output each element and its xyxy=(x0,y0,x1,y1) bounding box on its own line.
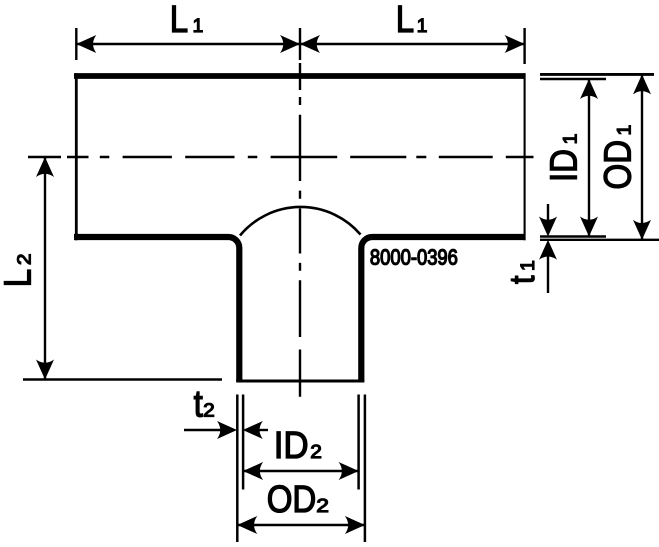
svg-text:ID: ID xyxy=(543,149,585,182)
svg-text:8000-0396: 8000-0396 xyxy=(370,244,458,269)
svg-text:OD: OD xyxy=(267,479,317,521)
svg-text:1: 1 xyxy=(193,15,204,37)
svg-text:2: 2 xyxy=(203,400,215,421)
svg-text:1: 1 xyxy=(517,260,539,271)
svg-text:t: t xyxy=(194,384,204,426)
svg-text:OD: OD xyxy=(598,140,640,190)
svg-text:L: L xyxy=(170,0,188,41)
svg-text:ID: ID xyxy=(274,425,309,467)
svg-text:2: 2 xyxy=(15,253,36,265)
svg-text:2: 2 xyxy=(316,496,329,517)
svg-text:L: L xyxy=(0,269,40,287)
svg-text:2: 2 xyxy=(310,442,322,463)
svg-text:t: t xyxy=(503,275,542,284)
svg-text:1: 1 xyxy=(417,15,428,37)
svg-text:1: 1 xyxy=(559,134,581,145)
svg-text:L: L xyxy=(396,0,414,41)
svg-text:1: 1 xyxy=(614,125,636,136)
